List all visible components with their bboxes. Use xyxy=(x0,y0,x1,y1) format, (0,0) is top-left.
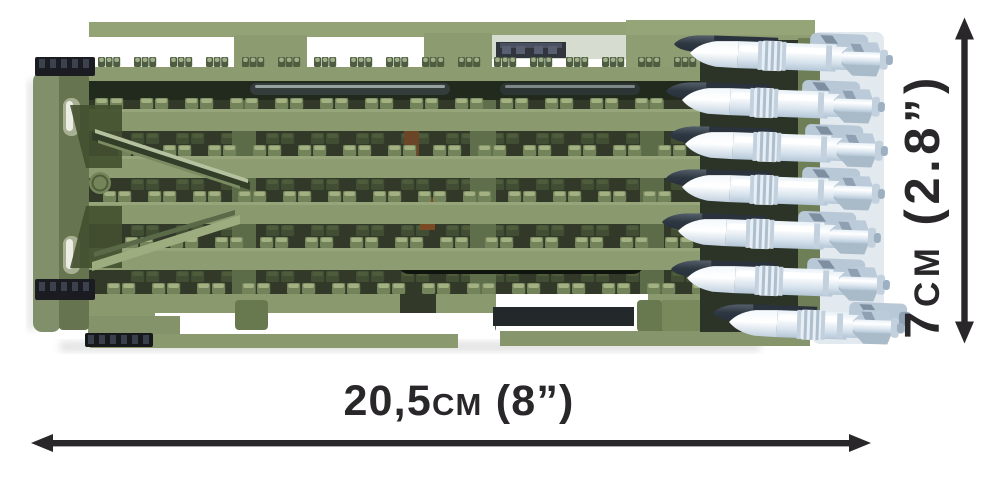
svg-text:7CM (2.8”): 7CM (2.8”) xyxy=(896,73,950,339)
svg-text:20,5CM (8”): 20,5CM (8”) xyxy=(343,377,574,425)
